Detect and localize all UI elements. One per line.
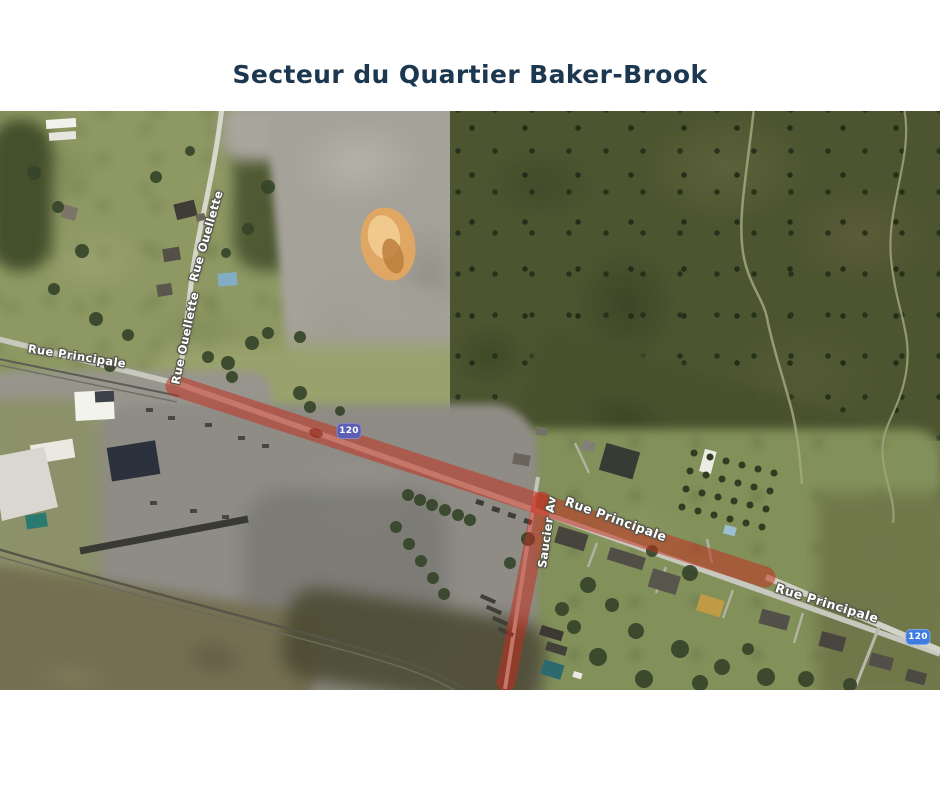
highlighted-route-saucier bbox=[506, 501, 542, 682]
flyer-page: Secteur du Quartier Baker-Brook bbox=[0, 0, 940, 788]
trees bbox=[27, 146, 857, 690]
route-120-shield-west: 120 bbox=[338, 424, 361, 438]
roads bbox=[0, 111, 940, 690]
highlighted-route-main bbox=[176, 386, 765, 577]
highlighted-route bbox=[176, 386, 765, 682]
forest-trails bbox=[741, 111, 907, 523]
map-scenery bbox=[0, 111, 940, 690]
page-title: Secteur du Quartier Baker-Brook bbox=[0, 60, 940, 89]
sand-pile bbox=[354, 202, 422, 286]
satellite-map: Rue Principale Rue Ouellette Rue Ouellet… bbox=[0, 111, 940, 690]
route-120-shield-east: 120 bbox=[907, 630, 930, 644]
tree-farm-rows bbox=[679, 450, 778, 531]
